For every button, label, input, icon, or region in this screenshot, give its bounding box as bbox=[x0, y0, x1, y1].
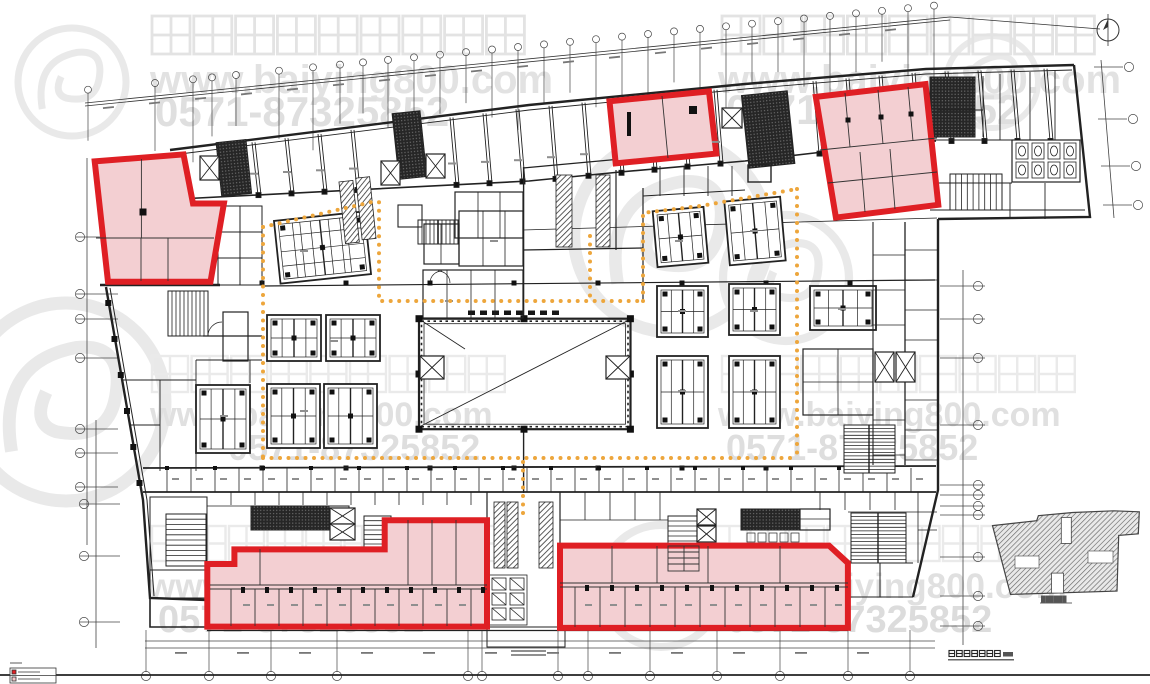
svg-text:██████: ██████ bbox=[1041, 595, 1067, 603]
